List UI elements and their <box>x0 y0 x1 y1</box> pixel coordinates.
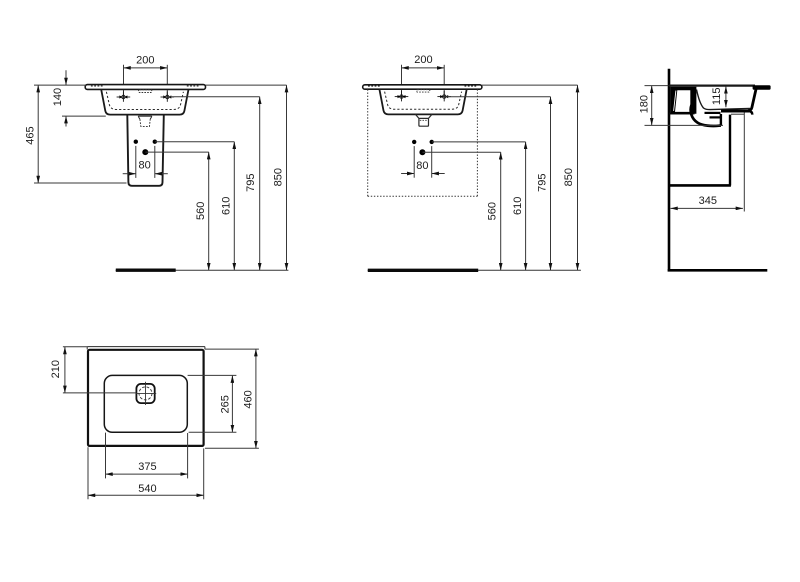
svg-text:560: 560 <box>195 202 207 220</box>
svg-text:115: 115 <box>711 88 723 106</box>
svg-text:200: 200 <box>136 54 154 66</box>
svg-text:610: 610 <box>221 197 233 215</box>
svg-text:80: 80 <box>138 160 150 172</box>
svg-text:795: 795 <box>537 174 549 192</box>
svg-text:560: 560 <box>487 202 499 220</box>
svg-text:345: 345 <box>699 195 717 207</box>
svg-text:80: 80 <box>416 160 428 172</box>
svg-text:850: 850 <box>272 168 284 186</box>
svg-text:465: 465 <box>25 126 37 144</box>
svg-text:200: 200 <box>414 54 432 66</box>
svg-text:540: 540 <box>138 483 156 495</box>
svg-text:375: 375 <box>138 461 156 473</box>
svg-text:795: 795 <box>245 174 257 192</box>
svg-text:610: 610 <box>512 197 524 215</box>
svg-text:180: 180 <box>639 95 651 113</box>
svg-text:850: 850 <box>563 168 575 186</box>
svg-text:265: 265 <box>219 395 231 413</box>
svg-text:460: 460 <box>242 390 254 408</box>
svg-text:140: 140 <box>52 88 64 106</box>
svg-text:210: 210 <box>50 360 62 378</box>
